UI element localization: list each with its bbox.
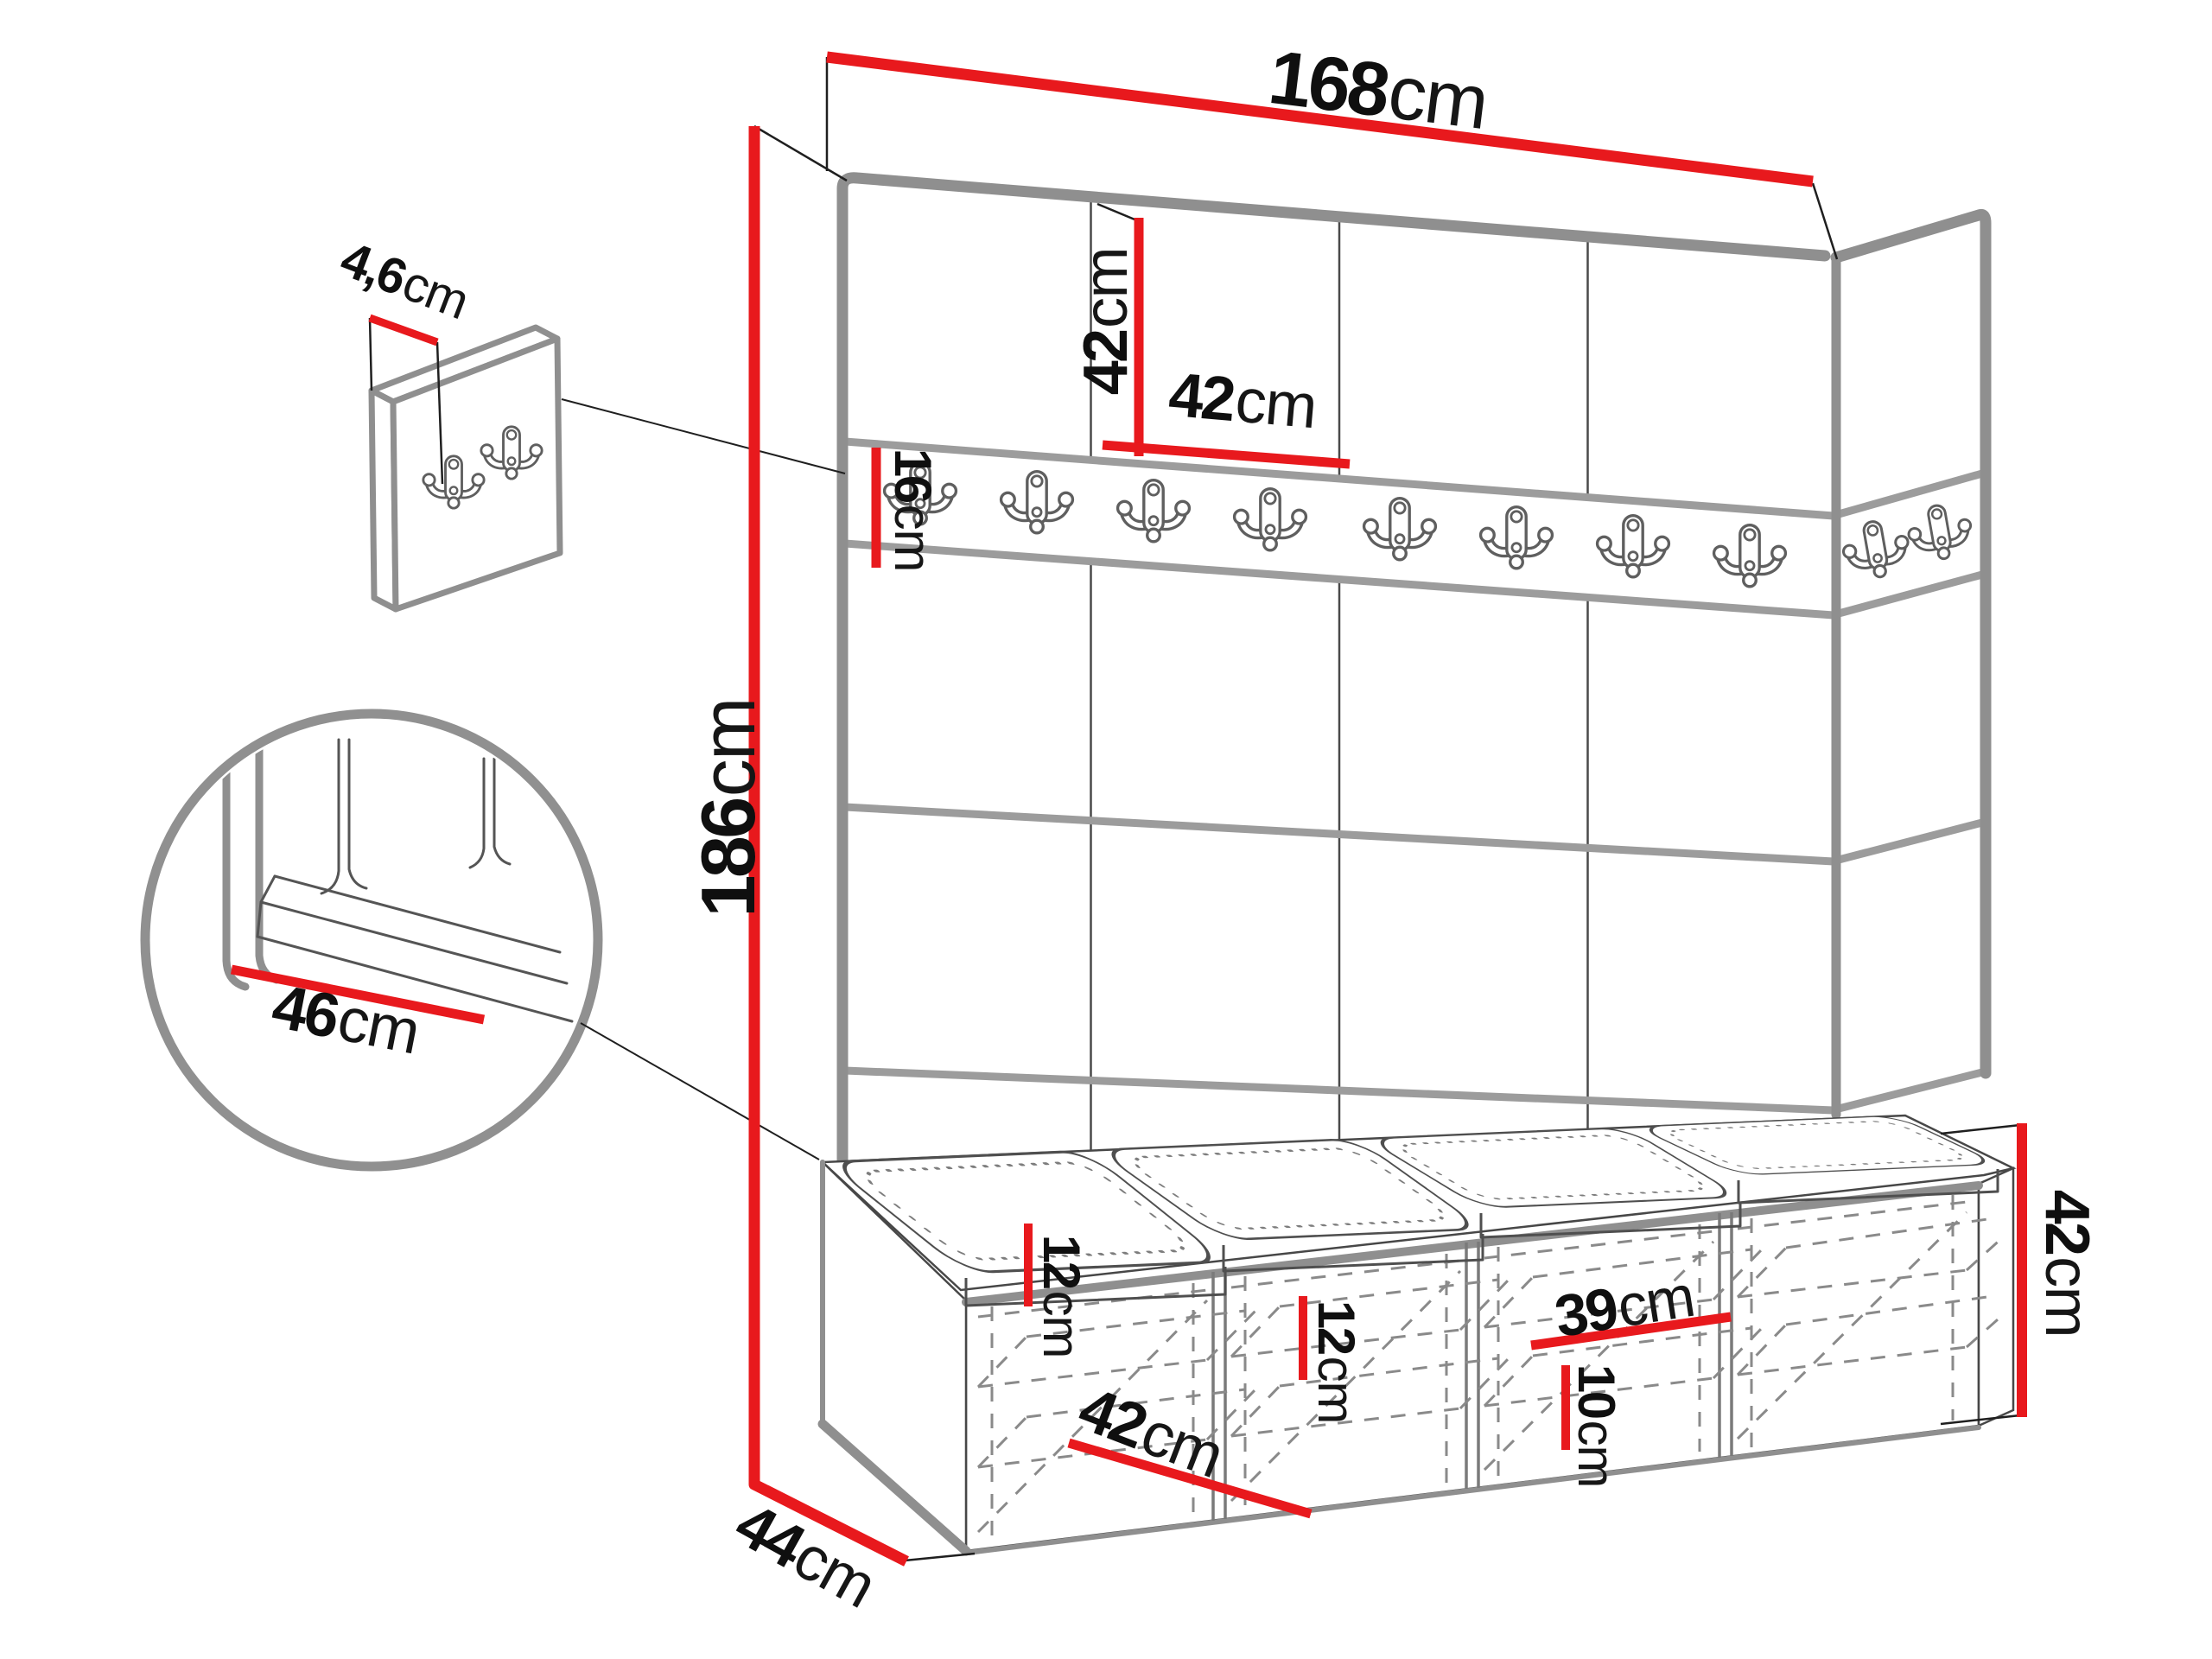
dim-unit: cm xyxy=(1384,48,1492,145)
dim-value: 46 xyxy=(267,971,343,1052)
dim-unit: cm xyxy=(884,505,942,572)
dim-label-bench-height: 42cm xyxy=(2036,1190,2098,1337)
dim-unit: cm xyxy=(1071,248,1141,328)
dim-value: 186 xyxy=(685,799,771,917)
dim-value: 12 xyxy=(1307,1300,1365,1354)
dim-unit: cm xyxy=(2032,1256,2101,1337)
diagram-page: 168cm 186cm 42cm 42cm 16cm 4,6cm 46cm 12… xyxy=(0,0,2212,1659)
wall-panel-unit xyxy=(842,177,1986,1161)
bench-shoe-cabinet xyxy=(823,1116,2013,1553)
tick-total-height-top xyxy=(754,126,847,181)
tick-bench-height-top xyxy=(1941,1125,2020,1134)
dim-label-panel-width: 42cm xyxy=(1166,364,1319,439)
dim-label-top-panel-height: 42cm xyxy=(1075,248,1137,395)
leader-hook-panel xyxy=(562,399,845,474)
leader-seat-detail xyxy=(581,1023,819,1160)
dim-label-shelf-spacing-left: 12cm xyxy=(1035,1235,1087,1358)
dim-label-shelf-spacing-mid: 12cm xyxy=(1310,1300,1362,1424)
tick-thickness-left xyxy=(370,318,372,391)
dimension-line-hook-panel-thickness xyxy=(370,318,437,342)
tick-depth-end xyxy=(905,1554,975,1560)
dim-label-bottom-shelf-height: 10cm xyxy=(1570,1364,1622,1488)
dim-value: 12 xyxy=(1033,1235,1090,1288)
hook-panel-detail xyxy=(372,327,560,609)
dim-value: 39 xyxy=(1550,1275,1620,1350)
dim-value: 168 xyxy=(1264,34,1391,133)
seat-corner-detail-circle xyxy=(145,714,598,1166)
dim-unit: cm xyxy=(1567,1421,1625,1488)
dim-unit: cm xyxy=(1033,1291,1090,1358)
dim-label-total-height: 186cm xyxy=(690,698,766,917)
tick-total-width-right xyxy=(1813,183,1837,259)
dim-value: 10 xyxy=(1567,1364,1625,1418)
dim-value: 16 xyxy=(884,448,942,502)
dim-value: 42 xyxy=(1166,360,1236,435)
dim-value: 42 xyxy=(2032,1190,2101,1254)
dim-unit: cm xyxy=(1233,365,1319,442)
dim-unit: cm xyxy=(1613,1263,1699,1340)
dim-unit: cm xyxy=(1307,1357,1365,1424)
dim-unit: cm xyxy=(685,698,771,797)
dim-label-hook-rail-height: 16cm xyxy=(887,448,938,572)
dim-value: 42 xyxy=(1071,331,1141,395)
